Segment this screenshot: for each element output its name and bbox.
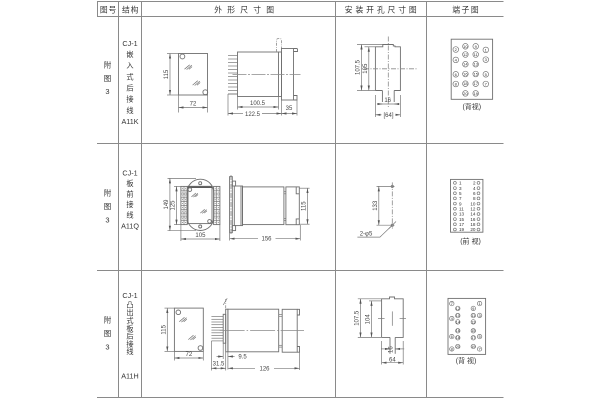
svg-text:5: 5 — [485, 72, 488, 77]
svg-text:端子图: 端子图 — [452, 5, 480, 15]
svg-text:8: 8 — [455, 82, 458, 87]
svg-text:156: 156 — [261, 237, 272, 243]
svg-text:107.5: 107.5 — [354, 310, 360, 326]
svg-text:18: 18 — [463, 81, 468, 86]
svg-text:后: 后 — [126, 84, 133, 93]
svg-text:3: 3 — [105, 87, 109, 96]
svg-text:15: 15 — [471, 328, 476, 333]
svg-text:入: 入 — [126, 61, 133, 70]
svg-text:2: 2 — [455, 47, 458, 52]
svg-text:20: 20 — [456, 344, 461, 349]
svg-text:线: 线 — [126, 106, 133, 115]
svg-text:13: 13 — [473, 62, 478, 67]
svg-text:结构: 结构 — [122, 5, 139, 15]
svg-text:2-φ5: 2-φ5 — [360, 231, 373, 237]
svg-text:16: 16 — [389, 346, 395, 353]
svg-text:图: 图 — [104, 74, 112, 83]
svg-text:A11Q: A11Q — [121, 221, 139, 230]
svg-text:3: 3 — [105, 343, 109, 352]
svg-text:(背视): (背视) — [462, 102, 481, 111]
svg-text:A11H: A11H — [121, 371, 138, 380]
svg-text:6: 6 — [455, 72, 458, 77]
svg-text:CJ-1: CJ-1 — [122, 168, 137, 177]
svg-text:图: 图 — [104, 202, 112, 211]
svg-text:72: 72 — [186, 352, 193, 358]
svg-text:104: 104 — [366, 314, 372, 325]
svg-text:(前 视): (前 视) — [460, 237, 481, 246]
svg-text:64: 64 — [389, 358, 396, 364]
svg-text:9.5: 9.5 — [238, 355, 247, 361]
svg-text:72: 72 — [190, 102, 197, 108]
svg-text:附: 附 — [104, 61, 112, 70]
svg-text:10: 10 — [456, 313, 461, 318]
svg-text:105: 105 — [195, 233, 206, 239]
svg-text:前: 前 — [126, 190, 133, 199]
svg-text:线: 线 — [126, 347, 133, 356]
svg-text:[64]: [64] — [383, 113, 393, 119]
svg-text:7: 7 — [485, 82, 488, 87]
svg-text:接: 接 — [126, 200, 133, 209]
svg-text:14: 14 — [456, 319, 461, 324]
svg-text:107.5: 107.5 — [355, 59, 361, 75]
svg-text:3: 3 — [485, 57, 488, 62]
svg-text:100.5: 100.5 — [250, 101, 266, 107]
svg-text:(背 视): (背 视) — [456, 356, 477, 365]
svg-text:12: 12 — [456, 306, 461, 311]
svg-text:图号: 图号 — [100, 6, 117, 15]
svg-text:嵌: 嵌 — [126, 50, 133, 59]
svg-text:附: 附 — [104, 189, 112, 198]
svg-text:12: 12 — [463, 52, 468, 57]
svg-text:115: 115 — [302, 201, 308, 211]
svg-text:线: 线 — [126, 211, 133, 220]
svg-text:16: 16 — [456, 328, 461, 333]
svg-text:35: 35 — [286, 106, 293, 112]
svg-text:19: 19 — [473, 91, 478, 96]
svg-text:17: 17 — [471, 335, 476, 340]
svg-text:20: 20 — [463, 91, 468, 96]
svg-text:126: 126 — [259, 367, 270, 373]
svg-text:125: 125 — [171, 200, 177, 211]
svg-text:10: 10 — [463, 44, 468, 49]
svg-text:A11K: A11K — [121, 117, 138, 126]
svg-text:149: 149 — [164, 199, 170, 210]
svg-text:105: 105 — [363, 63, 369, 74]
svg-text:122.5: 122.5 — [245, 112, 261, 118]
svg-text:15: 15 — [473, 72, 478, 77]
svg-text:1: 1 — [485, 47, 488, 52]
svg-text:115: 115 — [164, 69, 170, 79]
svg-text:20: 20 — [470, 227, 476, 232]
svg-text:接: 接 — [126, 95, 133, 104]
svg-text:4: 4 — [455, 57, 458, 62]
svg-text:19: 19 — [471, 344, 476, 349]
svg-text:9: 9 — [475, 44, 478, 49]
svg-text:图: 图 — [104, 329, 112, 338]
svg-text:外形尺寸图: 外形尺寸图 — [214, 5, 279, 15]
svg-text:附: 附 — [104, 316, 112, 325]
svg-text:13: 13 — [471, 319, 476, 324]
svg-text:CJ-1: CJ-1 — [122, 39, 137, 48]
svg-text:19: 19 — [459, 227, 465, 232]
svg-text:18: 18 — [456, 335, 461, 340]
svg-text:16: 16 — [384, 98, 391, 104]
svg-text:17: 17 — [473, 81, 478, 86]
svg-text:14: 14 — [463, 62, 468, 67]
svg-text:3: 3 — [105, 216, 109, 225]
svg-text:式: 式 — [126, 72, 133, 81]
svg-text:安装开孔尺寸图: 安装开孔尺寸图 — [345, 5, 420, 15]
svg-text:115: 115 — [161, 324, 167, 334]
svg-text:133: 133 — [373, 200, 379, 211]
svg-text:16: 16 — [463, 72, 468, 77]
svg-text:板: 板 — [126, 179, 133, 188]
svg-text:CJ-1: CJ-1 — [122, 291, 137, 300]
svg-text:31.5: 31.5 — [213, 362, 225, 368]
